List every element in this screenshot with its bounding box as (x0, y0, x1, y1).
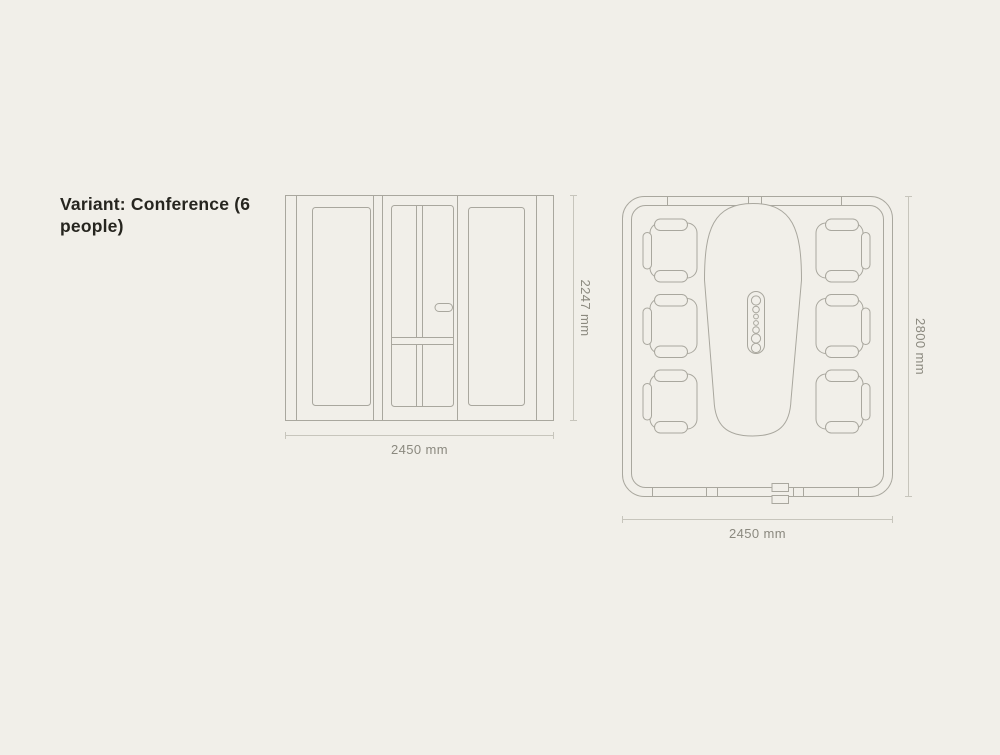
plan-width-dimension-label: 2450 mm (729, 526, 786, 541)
chair-left-3 (643, 370, 697, 433)
front-elevation-view: 2247 mm 2450 mm (286, 196, 594, 458)
chair-left-1 (643, 219, 697, 282)
plan-height-dimension-label: 2800 mm (913, 318, 928, 375)
plan-door-handle-mark (772, 496, 789, 504)
chair-right-3 (816, 370, 870, 433)
top-plan-view: 2800 mm 2450 mm (623, 197, 929, 542)
conference-table (705, 204, 802, 437)
plan-door-handle-mark (772, 484, 789, 492)
door-handle (435, 304, 453, 312)
front-height-dimension: 2247 mm (570, 196, 593, 421)
chair-right-1 (816, 219, 870, 282)
front-width-dimension-label: 2450 mm (391, 442, 448, 457)
chair-right-2 (816, 295, 870, 358)
front-door (392, 206, 454, 407)
door-mid-rail (392, 338, 454, 345)
front-left-glass-panel (313, 208, 371, 406)
front-right-glass-panel (469, 208, 525, 406)
front-height-dimension-label: 2247 mm (578, 280, 593, 337)
technical-drawing-canvas: 2247 mm 2450 mm (0, 0, 1000, 755)
front-width-dimension: 2450 mm (286, 432, 554, 457)
pod-front-outline (286, 196, 554, 421)
plan-height-dimension: 2800 mm (905, 197, 928, 497)
chair-left-2 (643, 295, 697, 358)
plan-width-dimension: 2450 mm (623, 516, 893, 541)
